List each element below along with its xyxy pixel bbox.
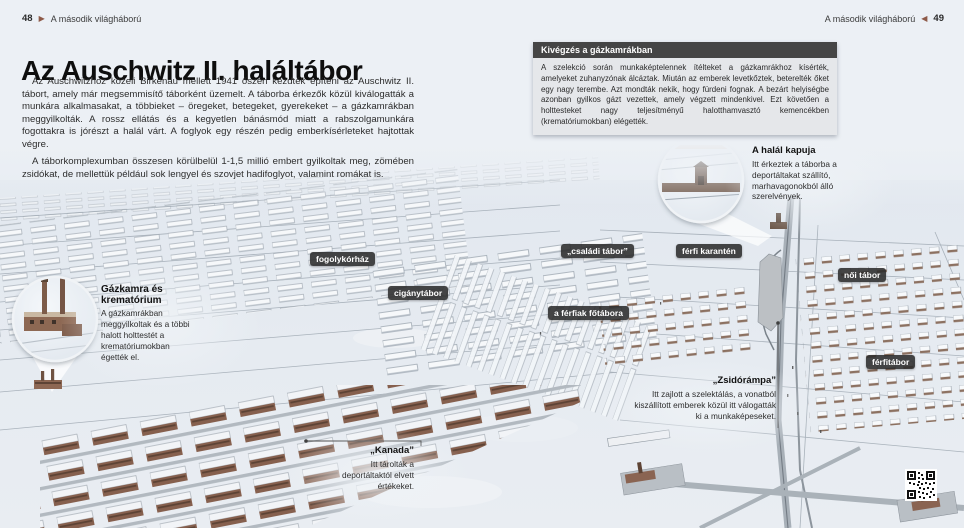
annotation-title: „Zsidórámpa” [628, 376, 776, 387]
page-number-right: 49 [933, 13, 944, 24]
map-label-ferfiak-fotabora: a férfiak főtábora [548, 306, 629, 320]
arrow-left-icon: ◀ [921, 15, 927, 23]
page-number-left: 48 [22, 13, 33, 24]
annotation-jewish-ramp: „Zsidórámpa” Itt zajlott a szelektálás, … [628, 376, 776, 421]
section-title: A második világháború [825, 14, 916, 24]
arrow-right-icon: ▶ [39, 15, 45, 23]
annotation-kanada: „Kanada” Itt tárolták a deportáltaktól e… [320, 446, 414, 491]
map-label-fogolykorhaz: fogolykórház [310, 252, 375, 266]
infobox-gas-chamber-execution: Kivégzés a gázkamrákban A szelekció sorá… [533, 42, 837, 135]
annotation-body: Itt érkeztek a táborba a deportáltakat s… [752, 159, 862, 203]
page-header-right: A második világháború ◀ 49 [825, 13, 944, 24]
annotation-body: Itt tárolták a deportáltaktól elvett ért… [320, 459, 414, 492]
map-label-ferfitabor: férfitábor [866, 355, 915, 369]
article-paragraph: Az Auschwitzhoz közeli Birkenau mellett … [22, 76, 414, 151]
annotation-body: Itt zajlott a szelektálás, a vonatból ki… [628, 389, 776, 422]
page-header-left: 48 ▶ A második világháború [22, 13, 141, 24]
article-body: Az Auschwitzhoz közeli Birkenau mellett … [22, 76, 414, 187]
annotation-title: Gázkamra és krematórium [101, 284, 193, 306]
map-label-csaladi-tabor: „családi tábor” [561, 244, 634, 258]
map-label-ciganytabor: cigánytábor [388, 286, 448, 300]
qr-code [905, 469, 937, 501]
annotation-body: A gázkamrákban meggyilkoltak és a többi … [101, 308, 193, 363]
article-paragraph: A táborkomplexumban összesen körülbelül … [22, 156, 414, 181]
annotation-gas-chamber: Gázkamra és krematórium A gázkamrákban m… [101, 284, 193, 363]
infobox-body: A szelekció során munkaképtelennek ítélt… [533, 58, 837, 135]
annotation-title: „Kanada” [320, 446, 414, 457]
map-label-noi-tabor: női tábor [838, 268, 886, 282]
map-label-ferfi-karanten: férfi karantén [676, 244, 742, 258]
book-spread: 48 ▶ A második világháború A második vil… [0, 0, 964, 528]
annotation-title: A halál kapuja [752, 146, 862, 157]
annotation-death-gate: A halál kapuja Itt érkeztek a táborba a … [752, 146, 862, 202]
section-title: A második világháború [51, 14, 142, 24]
infobox-title: Kivégzés a gázkamrákban [533, 42, 837, 58]
